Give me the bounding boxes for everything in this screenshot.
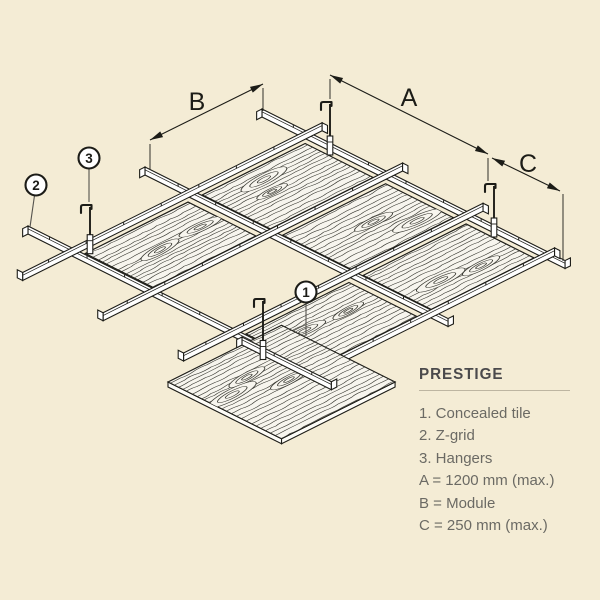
legend-panel: PRESTIGE 1. Concealed tile 2. Z-grid 3. … (419, 366, 589, 537)
callout-number: 2 (32, 178, 40, 193)
legend-item-dim-c: C = 250 mm (max.) (419, 515, 589, 537)
callout-hangers: 3 (79, 148, 100, 203)
dimension-label-c: C (519, 150, 537, 178)
dimension-a: A (330, 75, 488, 154)
legend-title: PRESTIGE (419, 366, 581, 384)
legend-item-dim-a: A = 1200 mm (max.) (419, 470, 589, 492)
ceiling-system-illustration: ABC123 PRESTIGE 1. Concealed tile 2. Z-g… (0, 0, 600, 600)
dimension-label-a: A (401, 84, 418, 112)
callout-number: 1 (302, 285, 310, 300)
legend-item-hangers: 3. Hangers (419, 448, 589, 470)
legend-item-list: 1. Concealed tile 2. Z-grid 3. Hangers A… (419, 403, 589, 537)
callout-number: 3 (85, 151, 93, 166)
legend-item-z-grid: 2. Z-grid (419, 425, 589, 447)
dimension-label-b: B (189, 88, 206, 116)
legend-rule-divider (419, 390, 570, 391)
legend-item-concealed-tile: 1. Concealed tile (419, 403, 589, 425)
callout-z-grid: 2 (26, 175, 47, 228)
dimension-c: C (492, 150, 560, 191)
legend-item-dim-b: B = Module (419, 493, 589, 515)
dimension-b: B (150, 84, 263, 140)
